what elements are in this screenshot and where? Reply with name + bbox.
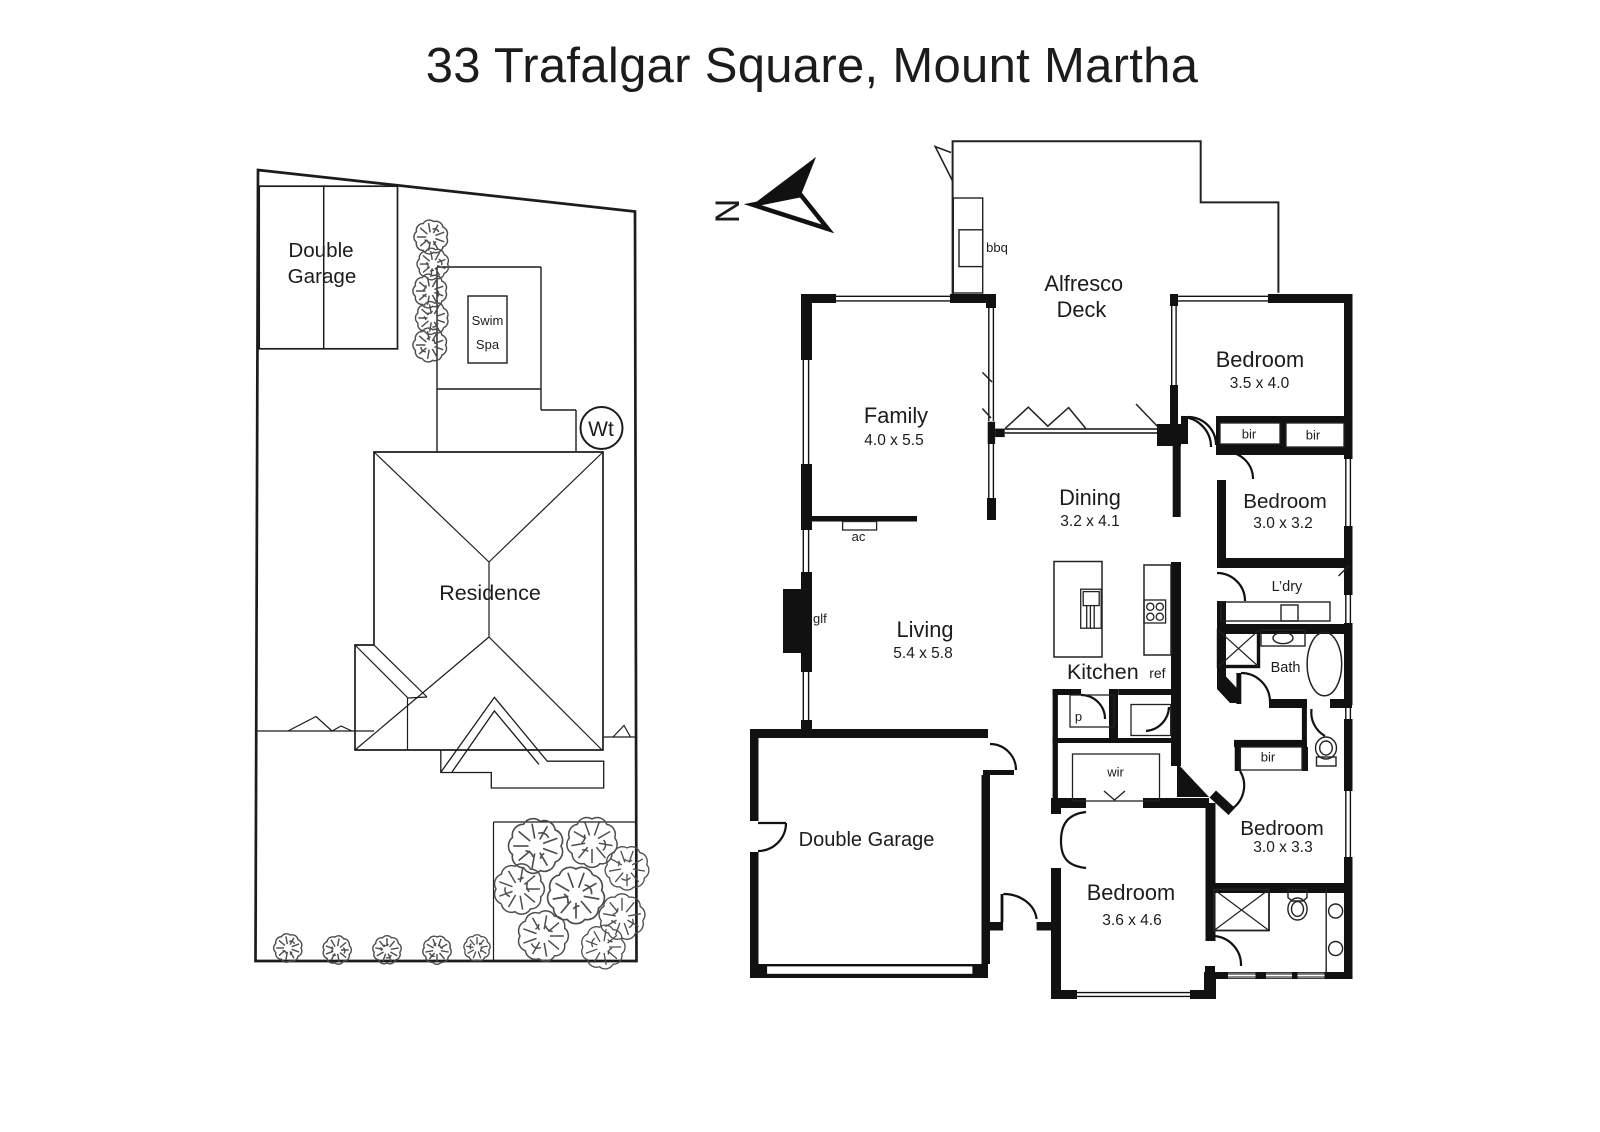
svg-text:Living: Living — [897, 617, 954, 642]
svg-text:5.4 x 5.8: 5.4 x 5.8 — [893, 645, 952, 662]
svg-text:Double Garage: Double Garage — [799, 829, 935, 851]
svg-text:33 Trafalgar Square, Mount Mar: 33 Trafalgar Square, Mount Martha — [426, 39, 1199, 93]
svg-text:Bedroom: Bedroom — [1243, 490, 1327, 513]
svg-text:Bedroom: Bedroom — [1240, 817, 1324, 840]
svg-text:p: p — [1075, 709, 1082, 724]
svg-text:3.5 x 4.0: 3.5 x 4.0 — [1230, 375, 1290, 392]
svg-text:Spa: Spa — [476, 337, 500, 352]
svg-text:Bath: Bath — [1271, 660, 1301, 676]
svg-text:3.0 x 3.2: 3.0 x 3.2 — [1253, 515, 1312, 532]
svg-text:3.2 x 4.1: 3.2 x 4.1 — [1060, 513, 1119, 530]
svg-text:wir: wir — [1106, 765, 1124, 780]
svg-text:3.0 x 3.3: 3.0 x 3.3 — [1253, 839, 1312, 856]
svg-text:bir: bir — [1261, 750, 1276, 765]
svg-text:Garage: Garage — [288, 265, 357, 288]
svg-text:glf: glf — [813, 611, 827, 626]
svg-text:bir: bir — [1242, 427, 1257, 442]
svg-text:bir: bir — [1306, 428, 1321, 443]
svg-text:Kitchen: Kitchen — [1067, 660, 1139, 684]
svg-text:Dining: Dining — [1059, 485, 1121, 510]
svg-text:Deck: Deck — [1057, 297, 1107, 322]
svg-text:bbq: bbq — [986, 240, 1008, 255]
svg-text:N: N — [709, 199, 747, 224]
svg-text:ac: ac — [852, 529, 866, 544]
svg-text:ref: ref — [1149, 665, 1165, 681]
svg-text:L’dry: L’dry — [1272, 579, 1303, 595]
svg-text:Swim: Swim — [472, 313, 504, 328]
svg-text:Bedroom: Bedroom — [1087, 880, 1175, 905]
svg-text:Wt: Wt — [588, 418, 614, 441]
svg-text:Family: Family — [864, 403, 928, 428]
svg-text:Bedroom: Bedroom — [1216, 347, 1304, 372]
svg-text:Alfresco: Alfresco — [1044, 271, 1123, 296]
svg-text:Double: Double — [288, 239, 353, 262]
svg-text:4.0 x 5.5: 4.0 x 5.5 — [864, 432, 923, 449]
svg-text:3.6 x 4.6: 3.6 x 4.6 — [1102, 912, 1161, 929]
svg-text:Residence: Residence — [439, 581, 541, 605]
